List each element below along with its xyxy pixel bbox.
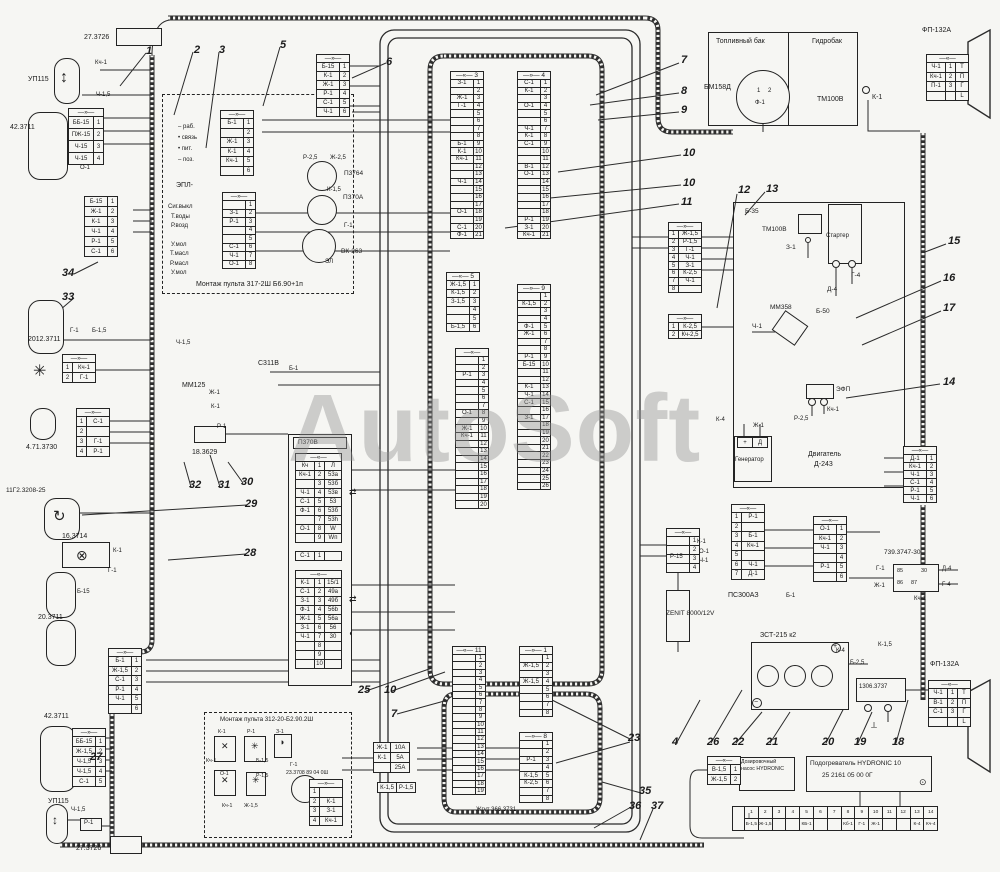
connector-row: 8	[519, 709, 553, 718]
connector-row: Кч-121	[517, 231, 551, 240]
label: Г-4	[942, 582, 951, 588]
pin-cell: 5	[95, 776, 106, 787]
connector-row: L	[928, 717, 971, 728]
callout-13: 13	[766, 184, 778, 195]
label: К-1	[113, 548, 122, 554]
callout-16: 16	[943, 273, 955, 284]
pin-cell	[678, 285, 702, 294]
label: ЭЛ	[325, 259, 333, 265]
switch-icon: ✕	[221, 742, 229, 751]
lamp20-box	[46, 572, 76, 618]
pin-cell: 25А	[390, 762, 410, 773]
connector-row: 2Г-1	[62, 372, 96, 383]
pin-cell: Г-1	[72, 372, 96, 383]
callout-32: 32	[189, 480, 201, 491]
battery-cell	[784, 665, 806, 687]
connector-row: С-11	[295, 551, 342, 561]
callout-5: 5	[280, 40, 286, 51]
connector-row: 8	[668, 285, 702, 294]
callout-22: 22	[732, 737, 744, 748]
label: ZENIT 8000/12V	[666, 611, 714, 618]
pin-cell: +	[737, 437, 753, 448]
harness-strip-9: —»— 91К-1,5234Ф-15Ж-1678Р-19Б-15101112К-…	[517, 284, 551, 490]
pin-cell	[519, 709, 543, 718]
label: 27.3726	[84, 34, 109, 41]
pin-cell	[295, 659, 315, 669]
label: С311В	[258, 360, 279, 367]
combo-switch-table-1: —«—Кч1ЛКч-1253а353бЧ-1453вС-1553Ф-1653б7…	[295, 453, 342, 543]
label: ПЗ70А	[343, 195, 363, 202]
callout-8: 8	[681, 86, 687, 97]
heater-pin-value	[827, 818, 842, 831]
callout-19: 19	[854, 737, 866, 748]
heater-pin-value: Ж-1	[868, 818, 883, 831]
label: • связь	[178, 135, 197, 141]
label: Г-1	[344, 223, 353, 229]
pin-cell: 6	[339, 107, 350, 117]
connector-row: 6	[220, 166, 254, 177]
label: ФП-132А	[930, 661, 959, 668]
connector-row: О-18	[222, 260, 256, 270]
callout-31: 31	[218, 480, 230, 491]
connector-row: К-1,5Р-1,5	[377, 782, 416, 793]
label: Б-1	[786, 593, 795, 599]
pin-cell: С-1	[84, 246, 108, 257]
pin-cell: Wп	[324, 533, 342, 543]
label: Сиг.выкл	[168, 204, 193, 210]
pin-cell: 6	[926, 494, 937, 503]
connector-row: +Д	[737, 437, 768, 448]
callout-1: 1	[146, 46, 152, 57]
label: 20.3711	[38, 614, 63, 621]
label: Р.возд	[171, 223, 188, 229]
callout-9: 9	[681, 105, 687, 116]
label: БМ158Д	[704, 84, 731, 91]
pin-cell	[928, 717, 948, 728]
pin-cell	[813, 572, 837, 583]
panel-connector-a: —»—Б-112Ж-13К-14Кч-156	[220, 110, 254, 176]
pin-cell: 19	[475, 787, 486, 795]
callout-28: 28	[244, 548, 256, 559]
harness-strip-3: —«— 3З-112Ж-13Г-145678Б-19К-110Кч-111121…	[450, 71, 484, 239]
console-connector: —»—12К-13З-14Кч-1	[309, 779, 343, 826]
tank-divider	[788, 32, 789, 126]
label: Б-2,5	[850, 660, 864, 666]
heater-pin-value: Г-1	[854, 818, 869, 831]
callout-26: 26	[707, 737, 719, 748]
pin-cell: L	[957, 717, 971, 728]
label: Т.воды	[171, 214, 190, 220]
label: 30	[921, 569, 927, 575]
heater-pin-value: Ж-1,5	[758, 818, 773, 831]
relay-terminal	[864, 704, 872, 712]
label: Ж-1	[209, 390, 220, 396]
pin-cell	[926, 91, 946, 102]
callout-7: 7	[391, 709, 397, 720]
label: Гидробак	[812, 38, 842, 45]
label: Т.масл	[170, 251, 189, 257]
combo-switch-table-3: —«—К-1115/1С-1249аЗ-1349бФ-1456bЖ-1556аЗ…	[295, 570, 342, 669]
flasher-icon: ↻	[53, 509, 66, 524]
connector-row: 6	[108, 704, 142, 715]
label: ВК-263	[341, 249, 362, 256]
connector-row: 9Wп	[295, 533, 342, 543]
pin-cell: Ж-1,5	[707, 774, 731, 785]
plafond-box	[30, 408, 56, 440]
ground-icon: ⟂	[871, 721, 877, 730]
up115-arrows-icon: ↕	[52, 814, 58, 826]
connector-row: С-15	[72, 776, 106, 787]
pin-cell: 4	[93, 152, 104, 165]
connector-row: Ф-121	[450, 231, 484, 240]
label: З-1	[276, 730, 284, 735]
label: Монтаж пульта 317-2Ш Б6.90+1п	[196, 281, 303, 288]
label: К-4	[836, 648, 845, 654]
callout-33: 33	[62, 292, 74, 303]
harness-strip-1: —»— 11Ж-1,523Ж-1,545678	[519, 646, 553, 717]
label: Кч-1	[95, 60, 107, 66]
battery-cell	[811, 665, 833, 687]
label: ФП-132А	[922, 27, 951, 34]
pin-cell: Кч-1	[319, 816, 343, 827]
label: Б-15	[77, 589, 90, 595]
label: +	[833, 643, 837, 650]
label: Ч-1,5	[176, 340, 190, 346]
pin-cell: С-1	[295, 551, 315, 561]
label: 86	[897, 581, 903, 587]
pin-cell: 4	[689, 563, 700, 573]
harness-strip-4: —»— 4С-11К-123О-1456Ч-17К-18С-191011В-11…	[517, 71, 551, 239]
lamp-switch-icon: ◑	[279, 738, 284, 747]
relay-1306-box	[856, 678, 906, 702]
sensor-terminal	[805, 237, 811, 243]
label: Ж-1	[753, 423, 764, 429]
label: Г-1	[108, 568, 117, 574]
label: насос HYDRONIC	[741, 767, 784, 772]
label: 42.3711	[44, 713, 69, 720]
harness-strip-8: —»— 812Р-134К-1,55К-2,5678	[519, 732, 553, 803]
pin-cell: 8	[245, 260, 256, 270]
fuse-wires: К-1,5Р-1,5	[377, 782, 416, 793]
starter-terminal	[832, 260, 840, 268]
callout-4: 4	[672, 737, 678, 748]
pin-cell: 6	[243, 166, 254, 177]
pin-cell	[455, 500, 479, 509]
right-trunk-connector: —«—Д-11Кч-12Ч-13С-14Р-15Ч-16	[903, 446, 937, 503]
label: Ч-1	[699, 558, 708, 564]
callout-18: 18	[892, 737, 904, 748]
lock-icon: ⊙	[919, 778, 927, 787]
headlamp-bottom-box	[40, 726, 76, 792]
label: Жгут 366.3731	[476, 807, 516, 813]
headlamp-icon: ◐	[349, 629, 354, 638]
label: К-1,5	[878, 642, 892, 648]
label: Топливный бак	[716, 38, 765, 45]
pin-cell: Кч-1	[517, 231, 541, 240]
switch-icon: ✕	[221, 776, 229, 785]
label: К-4	[716, 417, 725, 423]
connector-row: 26	[517, 482, 551, 491]
callout-14: 14	[943, 377, 955, 388]
pin-cell: Ф-1	[450, 231, 474, 240]
callout-29: 29	[245, 499, 257, 510]
pin-cell	[295, 533, 315, 543]
horn-box	[28, 300, 64, 354]
connector-row: L	[926, 91, 969, 102]
label: Р-1	[217, 424, 226, 430]
label: ММ358	[770, 305, 792, 312]
label: УП115	[48, 798, 69, 805]
pin-cell: 6	[107, 246, 118, 257]
callout-37: 37	[651, 801, 663, 812]
label: 87	[911, 581, 917, 587]
label: Ж-2,5	[330, 155, 346, 161]
callout-7: 7	[681, 55, 687, 66]
label: ПС300АЗ	[728, 592, 759, 599]
battery-cell	[757, 665, 779, 687]
label: ЭПЛ-	[176, 182, 193, 189]
label: 23.3708 89 04 0Ш	[286, 771, 328, 776]
pin-cell: Д	[752, 437, 768, 448]
connector-row: Ж-1,52	[707, 774, 741, 785]
label: К-1	[872, 94, 882, 101]
pin-cell	[324, 551, 342, 561]
label: ТМ100В	[817, 96, 843, 103]
label: 1	[757, 88, 760, 94]
efp-terminal	[808, 398, 816, 406]
label: Р-15	[670, 554, 683, 560]
lamp20-box	[46, 620, 76, 666]
heater-pin-value	[785, 818, 800, 831]
pin-cell	[220, 166, 244, 177]
pin-cell: 26	[540, 482, 551, 491]
label: Ф-1	[755, 100, 765, 106]
label: Кч-1	[222, 804, 232, 809]
top-connector: —»—Б-151К-12Ж-13Р-14С-15Ч-16	[316, 54, 350, 117]
label: 4.71.3730	[26, 444, 57, 451]
fan-icon: ✳	[33, 364, 46, 380]
callout-15: 15	[948, 236, 960, 247]
callout-34: 34	[62, 268, 74, 279]
label: Кч-1	[206, 759, 216, 764]
relay-terminal	[884, 704, 892, 712]
pin-cell: Б-1,5	[446, 323, 470, 333]
fan-connector: —»—1Кч-12Г-1	[62, 354, 96, 383]
label: Кч-1	[914, 596, 926, 602]
connector-row: 20	[455, 500, 489, 509]
relay-27-box	[116, 28, 162, 46]
connector-row: 4	[666, 563, 700, 573]
label: Р-2,5	[794, 416, 808, 422]
connector-row: С-16	[84, 246, 118, 257]
fp132a-top-connector: —«—Ч-11ТКч-12ПП-13ГL	[926, 54, 969, 101]
label: Г-1	[290, 763, 297, 768]
label: Б-35	[745, 209, 759, 216]
turn-arrows-icon: ⇄	[349, 488, 357, 497]
fp132a-bottom-connector: —«—Ч-11ТВ-12ПС-13ГL	[928, 680, 971, 727]
gauge-circle	[307, 195, 337, 225]
callout-36: 36	[629, 801, 641, 812]
label: Б-50	[816, 309, 830, 316]
headlamp-connector: —»—ББ-151ПЖ-152Ч-153Ч-154	[68, 108, 104, 165]
plafond-connector: —»—1С-123Г-14Р-1	[76, 408, 110, 457]
pin-cell	[519, 795, 543, 804]
label: 25 2161 05 00 0Г	[822, 773, 873, 780]
label: – раб.	[178, 124, 195, 130]
label: Р.масл	[170, 261, 189, 267]
harness-strip-6: —«—12Р-134567О-189Ж-110Кч-11112131415161…	[455, 348, 489, 509]
label: Кч-1	[827, 407, 839, 413]
pin-cell: 6	[836, 572, 847, 583]
pin-cell	[666, 563, 690, 573]
label: Г-1	[70, 328, 79, 334]
label: К-1,5	[327, 187, 341, 193]
connector-row: 19	[452, 787, 486, 795]
label: 27.3726	[76, 845, 101, 852]
label: 42.3711	[10, 124, 35, 131]
connector-row: 25А	[373, 762, 410, 773]
ground-icon: ⟂	[746, 812, 752, 821]
label: О-1	[80, 165, 90, 171]
turn-arrows-icon: ⇄	[349, 595, 357, 604]
label: П370В	[298, 440, 318, 447]
harness-strip-11: —«— 1112345678910111213141516171819	[452, 646, 486, 795]
connector-row: Ч-16	[903, 494, 937, 503]
label: Б-1,5	[92, 328, 106, 334]
pin-cell: 8	[542, 795, 553, 804]
pin-cell: Кч-2,5	[678, 330, 702, 339]
callout-23: 23	[628, 733, 640, 744]
callout-27: 27	[90, 752, 102, 763]
label: К-1	[211, 404, 220, 410]
heater-pin-value	[896, 818, 911, 831]
connector-row: 4Кч-1	[309, 816, 343, 827]
connector-row: Б-1,56	[446, 323, 480, 333]
pin-cell	[373, 762, 391, 773]
label: Двигатель	[808, 451, 841, 458]
label: Стартер	[826, 233, 849, 239]
callout-21: 21	[766, 737, 778, 748]
label: Б-1	[289, 366, 298, 372]
small-connector: —«—1234	[666, 528, 700, 573]
engine-connector-b: —»—1К-2,52Кч-2,5	[668, 314, 702, 339]
label: Ч-1	[752, 324, 762, 331]
label: Г-1	[876, 566, 885, 572]
heater-pin-value	[772, 818, 787, 831]
label: Д-4	[827, 287, 837, 294]
pin-cell: 6	[131, 704, 142, 715]
callout-2: 2	[194, 45, 200, 56]
harness-strip-5: —«— 5Ж-1,51К-1,52З-1,5345Б-1,56	[446, 272, 480, 332]
pin-cell: Д-1	[741, 569, 765, 580]
label: Б-1,5	[256, 759, 268, 764]
label: 1306.3737	[859, 684, 887, 690]
speaker-icon	[968, 30, 990, 772]
pin-cell	[324, 659, 342, 669]
left-connector: Б-151Ж-12К-13Ч-14Р-15С-16	[84, 196, 118, 257]
label: Д-243	[814, 461, 833, 468]
ps300az-connector: —«—1Р-123Б-14Кч-156Ч-17Д-1	[731, 504, 765, 580]
pin-cell: Р-1,5	[396, 782, 416, 793]
connector-row: Ч-154	[68, 152, 104, 165]
heater-pin-value: КБ-1	[799, 818, 814, 831]
label: Подогреватель HYDRONIC 10	[810, 761, 901, 768]
pin-cell: Ч-1	[903, 494, 927, 503]
callout-11: 11	[681, 197, 692, 208]
generator-terminals: +Д	[737, 437, 768, 448]
label: З-1	[786, 245, 796, 252]
label: ЗСТ-215 к2	[760, 632, 796, 639]
fuse-block: Ж-110АК-15А25А	[373, 742, 410, 773]
callout-25: 25	[358, 685, 370, 696]
callout-10: 10	[683, 178, 695, 189]
connector-row: Ч-16	[316, 107, 350, 117]
label: ММ125	[182, 382, 205, 389]
label: 11Г2.3208-25	[6, 488, 46, 495]
pin-cell: О-1	[222, 260, 246, 270]
label: Р-1	[247, 730, 255, 735]
pin-cell: 21	[540, 231, 551, 240]
pin-cell: Ч-15	[68, 152, 94, 165]
pin-cell: К-1,5	[377, 782, 397, 793]
pin-cell: 20	[478, 500, 489, 509]
label: 18.3629	[192, 449, 217, 456]
switch-circle	[302, 229, 336, 263]
connector-row: 6	[813, 572, 847, 583]
wiring-diagram: AutoSoft —»—ББ-151ПЖ-152Ч-153Ч-154Б-151Ж…	[0, 0, 1000, 872]
heater-pin-value: К-4	[910, 818, 925, 831]
callout-35: 35	[639, 786, 651, 797]
heater-pin-value: Кб-1	[841, 818, 856, 831]
relay-27-bottom-box	[110, 836, 142, 854]
heater-pin-value	[882, 818, 897, 831]
label: 2	[768, 88, 771, 94]
up115-arrows-icon: ↕	[60, 70, 68, 86]
label: Ж-1,5	[244, 804, 258, 809]
harness-trunk	[112, 55, 152, 843]
label: 2012.3711	[28, 336, 61, 343]
callout-6: 6	[386, 57, 392, 68]
label: Ч-1,5	[96, 92, 110, 98]
tank-terminal	[862, 86, 870, 94]
dosing-pump-connector: —«—В-1,51Ж-1,52	[707, 756, 741, 785]
label: 85	[897, 569, 903, 575]
label: Р-1	[84, 820, 93, 826]
connector-row: 8	[519, 795, 553, 804]
callout-17: 17	[943, 303, 955, 314]
engine-connector-a: —»—1Ж-1,52Р-1,53Г-14Ч-15З-16К-2,57Ч-18	[668, 222, 702, 293]
starter-terminal	[848, 260, 856, 268]
callout-10: 10	[683, 148, 695, 159]
callout-30: 30	[241, 477, 253, 488]
heater-ground-cell	[732, 806, 745, 831]
pin-cell: С-1	[72, 776, 96, 787]
label: – поз.	[178, 157, 194, 163]
label: П3764	[344, 171, 363, 178]
label: −	[754, 699, 758, 706]
heater-pin-value: Кч-4	[923, 818, 938, 831]
pin-cell	[108, 704, 132, 715]
label: Ж-1	[874, 583, 885, 589]
callout-3: 3	[219, 45, 225, 56]
pin-cell: 21	[473, 231, 484, 240]
label: Монтаж пульта 312-20-Б2.90.2Ш	[220, 717, 313, 723]
label: О-1	[699, 549, 709, 555]
label: 739.3747-30	[884, 550, 921, 557]
label: 16.3714	[62, 533, 87, 540]
label: У.мол	[171, 270, 187, 276]
label: • пит.	[178, 146, 192, 152]
